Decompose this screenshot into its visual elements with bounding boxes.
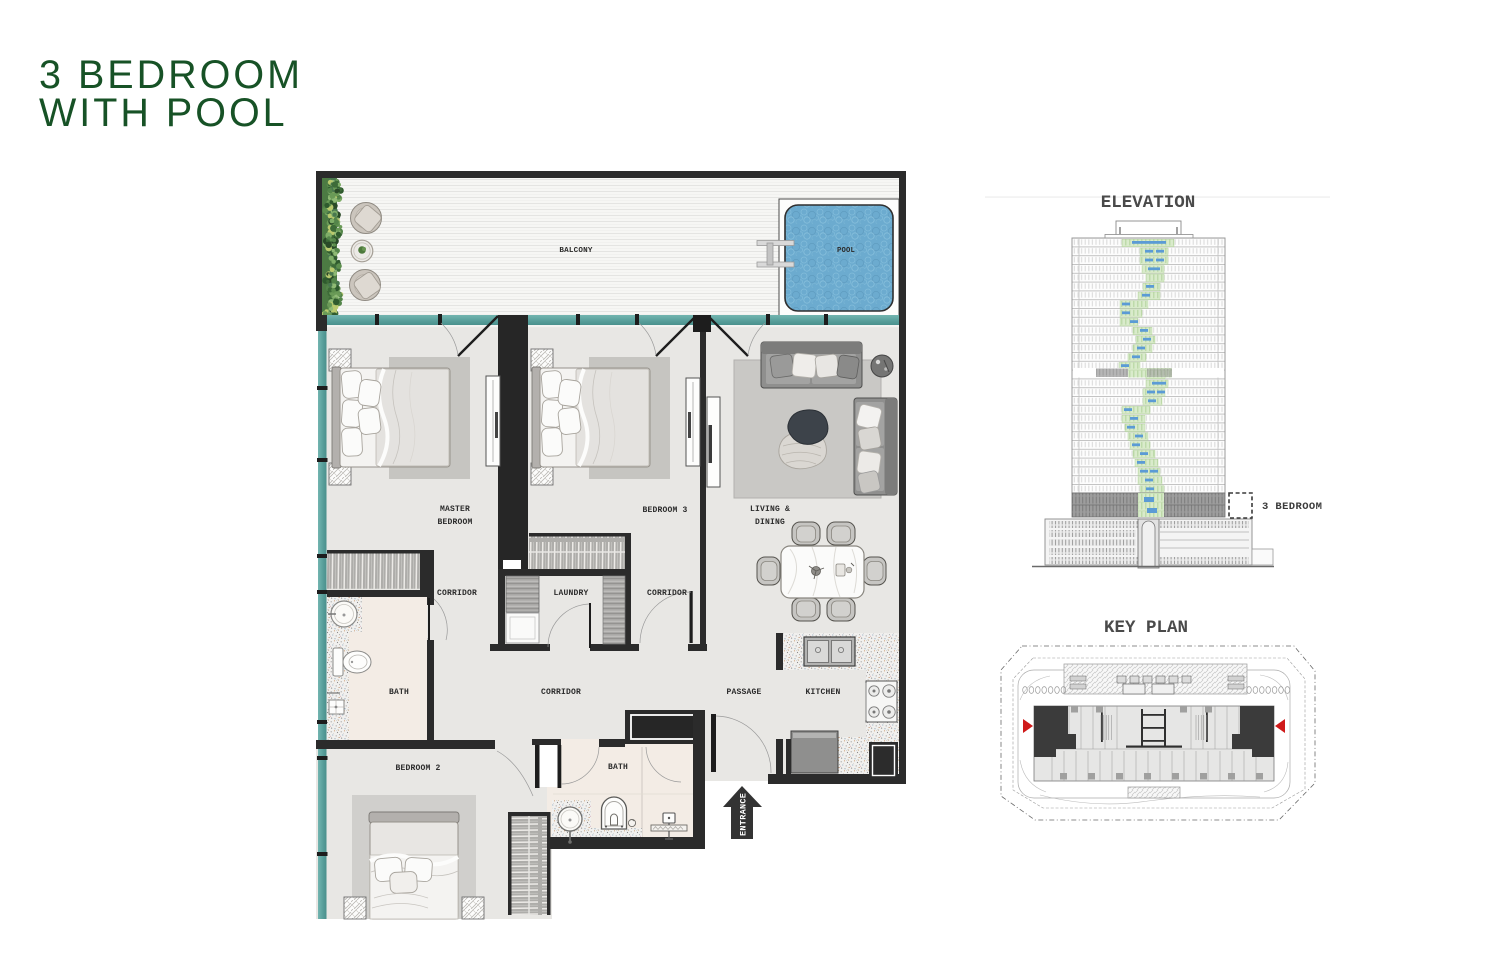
svg-text:LIVING &: LIVING &	[750, 505, 790, 514]
svg-text:ELEVATION: ELEVATION	[1101, 193, 1196, 213]
svg-text:KITCHEN: KITCHEN	[805, 688, 840, 697]
svg-text:MASTER: MASTER	[440, 505, 470, 514]
svg-text:BEDROOM: BEDROOM	[437, 518, 472, 527]
svg-text:KEY PLAN: KEY PLAN	[1104, 618, 1188, 638]
svg-text:3 BEDROOM: 3 BEDROOM	[1262, 501, 1322, 513]
svg-text:BEDROOM 3: BEDROOM 3	[642, 506, 687, 515]
svg-text:BALCONY: BALCONY	[559, 247, 593, 255]
svg-text:PASSAGE: PASSAGE	[726, 688, 761, 697]
svg-text:LAUNDRY: LAUNDRY	[553, 589, 588, 598]
svg-text:CORRIDOR: CORRIDOR	[647, 589, 687, 598]
svg-text:DINING: DINING	[755, 518, 785, 527]
svg-text:CORRIDOR: CORRIDOR	[541, 688, 581, 697]
svg-text:POOL: POOL	[837, 247, 855, 255]
svg-text:CORRIDOR: CORRIDOR	[437, 589, 477, 598]
svg-text:BATH: BATH	[389, 688, 409, 697]
svg-text:BEDROOM 2: BEDROOM 2	[395, 764, 440, 773]
svg-text:ENTRANCE: ENTRANCE	[739, 793, 749, 836]
svg-text:BATH: BATH	[608, 763, 628, 772]
